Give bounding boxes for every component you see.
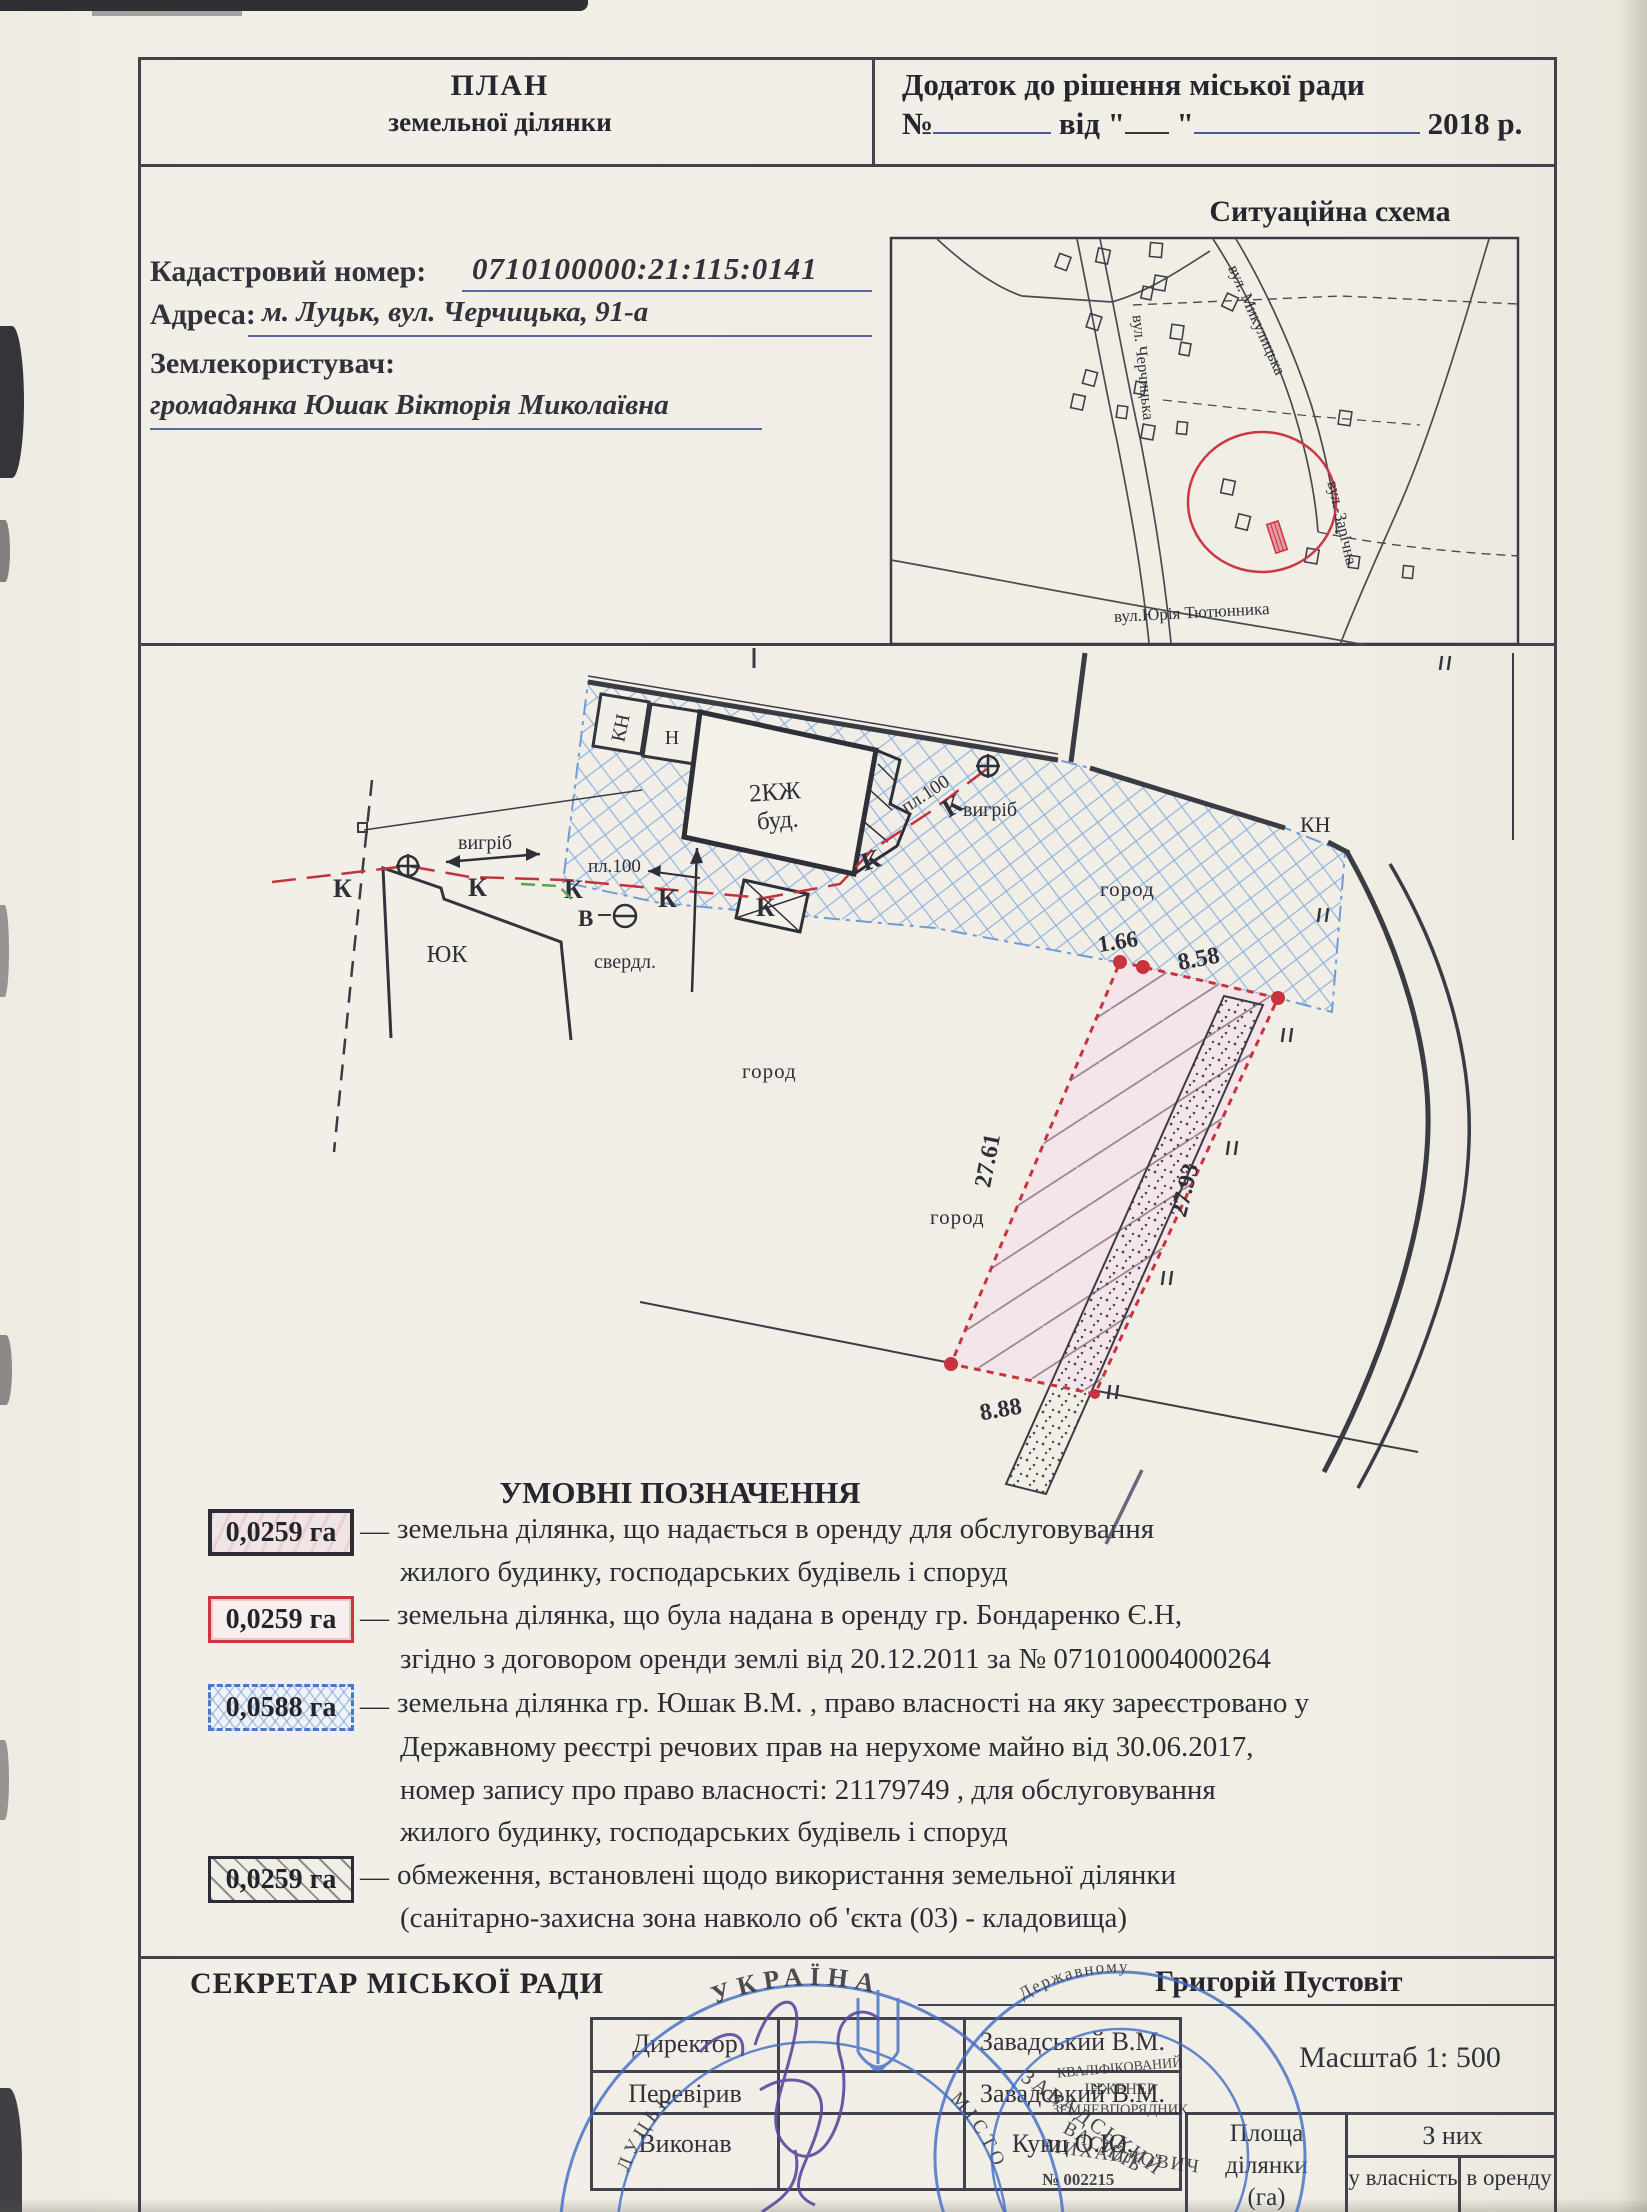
scan-artifact — [92, 11, 242, 16]
sign-name: Завадський В.М. — [966, 2028, 1179, 2056]
k-mark: К — [658, 884, 677, 913]
appendix-day-blank — [1125, 106, 1169, 134]
sign-table-border — [1179, 2017, 1182, 2191]
k-mark: К — [468, 873, 487, 902]
legend-line: жилого будинку, господарських будівель і… — [400, 1557, 1008, 1588]
area-lease-label: в оренду — [1461, 2166, 1557, 2191]
scan-artifact — [0, 1335, 12, 1405]
situ-roads — [891, 239, 1519, 645]
legend-line: земельна ділянка, що була надана в оренд… — [397, 1600, 1182, 1631]
landuser-value: громадянка Юшак Вікторія Миколаївна — [150, 390, 669, 421]
leased-parcel: 1.66 8.58 27.61 27.93 8.88 — [944, 926, 1285, 1494]
situ-highlight — [1188, 432, 1336, 572]
appendix-line2: № від " " 2018 р. — [902, 106, 1522, 140]
dwelling-label-1: 2КЖ — [748, 777, 802, 808]
legend-line: згідно з договором оренди землі від 20.1… — [400, 1644, 1271, 1675]
scan-artifact — [0, 2088, 22, 2212]
situational-map: вул. Черчицька вул. Микулицька вул.-Зарі… — [888, 235, 1522, 647]
scan-artifact — [0, 905, 9, 997]
yuk-label: ЮК — [427, 942, 469, 968]
gorod-label: город — [742, 1059, 797, 1083]
legend-line: земельна ділянка, що надається в оренду … — [397, 1514, 1154, 1545]
sign-table-border — [590, 2070, 1182, 2073]
dim-8-88: 8.88 — [978, 1394, 1024, 1427]
gorod-label: город — [1100, 877, 1155, 901]
legend-swatch-lease-old: 0,0259 га — [208, 1596, 354, 1643]
cadastral-underline — [462, 290, 872, 292]
legend-title: УМОВНІ ПОЗНАЧЕННЯ — [470, 1476, 890, 1509]
secretary-sign-line — [918, 2004, 1554, 2006]
cadastral-value: 0710100000:21:115:0141 — [472, 252, 818, 285]
sign-name: Завадський В.М. — [966, 2080, 1179, 2108]
k-mark: К — [564, 875, 583, 904]
pl100-label: пл.100 — [588, 856, 641, 877]
plan-title-line2: земельної ділянки — [310, 108, 690, 137]
legend-line: номер запису про право власності: 211797… — [400, 1775, 1216, 1806]
area-table-border — [1185, 2112, 1557, 2115]
legend-dash: — — [360, 1516, 389, 1547]
appendix-quote: " — [1177, 106, 1194, 141]
appendix-no: № — [902, 106, 933, 141]
sign-table-border — [590, 2017, 1182, 2020]
area-table-border — [1345, 2155, 1557, 2158]
street-label-zarichna: вул.-Зарічна — [1323, 479, 1361, 567]
vyhrib-label: вигріб — [458, 832, 512, 854]
v-mark: В — [578, 906, 593, 931]
sign-table-border — [777, 2017, 780, 2191]
landuser-underline — [150, 428, 762, 430]
appendix-line1: Додаток до рішення міської ради — [902, 68, 1365, 101]
address-underline — [248, 335, 872, 337]
area-own-label: у власність — [1348, 2166, 1458, 2191]
legend-line: земельна ділянка гр. Юшак В.М. , право в… — [397, 1688, 1309, 1719]
header-divider-vertical — [872, 57, 875, 167]
legend-dash: — — [360, 1603, 389, 1634]
k-mark: К — [756, 893, 775, 922]
scan-artifact — [0, 326, 24, 478]
scan-artifact — [0, 1740, 9, 1820]
footer-divider — [138, 1956, 1557, 1959]
gorod-label: город — [930, 1205, 985, 1229]
landuser-label: Землекористувач: — [150, 348, 395, 380]
sign-name: Кунц О.Ю. — [966, 2130, 1179, 2158]
appendix-year: 2018 р. — [1428, 106, 1523, 141]
area-col1-line2: ділянки — [1188, 2152, 1345, 2179]
area-col1-line1: Площа — [1188, 2120, 1345, 2147]
scale-label: Масштаб 1: 500 — [1240, 2042, 1560, 2074]
address-value: м. Луцьк, вул. Черчицька, 91-а — [262, 297, 648, 328]
situational-title: Ситуаційна схема — [1140, 196, 1520, 228]
situ-buildings — [1055, 243, 1414, 579]
dim-27-61: 27.61 — [970, 1132, 1006, 1190]
dwelling-label-2: буд. — [756, 806, 799, 836]
kn-right-label: КН — [1300, 812, 1331, 837]
secretary-label: СЕКРЕТАР МІСЬКОЇ РАДИ — [190, 1968, 604, 2000]
legend-swatch-restriction: 0,0259 га — [208, 1856, 354, 1903]
scan-artifact — [0, 520, 10, 582]
appendix-date-blank — [1194, 106, 1420, 134]
legend-dash: — — [360, 1691, 389, 1722]
header-divider-horizontal — [138, 164, 1557, 167]
cadastral-label: Кадастровий номер: — [150, 256, 426, 288]
n-box-label: Н — [665, 727, 679, 749]
sign-table-border — [590, 2112, 1182, 2115]
street-label-tiutiunnyka: вул.Юрія Тютюнника — [1113, 599, 1270, 626]
scan-shadow-right — [1618, 0, 1647, 2212]
secretary-name: Григорій Пустовіт — [1155, 1966, 1402, 1998]
legend-dash: — — [360, 1862, 389, 1893]
address-label: Адреса: — [150, 299, 256, 331]
sign-role: Виконав — [593, 2130, 777, 2158]
legend-swatch-owned: 0,0588 га — [208, 1684, 354, 1731]
area-ofthem-label: З них — [1348, 2122, 1557, 2150]
legend-swatch-lease-new: 0,0259 га — [208, 1509, 354, 1556]
legend-line: (санітарно-захисна зона навколо об 'єкта… — [400, 1903, 1127, 1934]
legend-line: обмеження, встановлені щодо використання… — [397, 1860, 1176, 1891]
legend-line: жилого будинку, господарських будівель і… — [400, 1817, 1008, 1848]
sign-table-border — [590, 2188, 1182, 2191]
appendix-no-blank — [933, 106, 1051, 134]
sign-role: Директор — [593, 2030, 777, 2058]
k-mark: К — [333, 874, 352, 903]
street-label-mykulytska: вул. Микулицька — [1224, 262, 1290, 379]
sign-role: Перевірив — [593, 2080, 777, 2108]
plan-title-line1: ПЛАН — [310, 70, 690, 102]
scanned-land-plan-page: ПЛАН земельної ділянки Додаток до рішенн… — [0, 0, 1647, 2212]
area-col1-line3: (га) — [1188, 2184, 1345, 2211]
legend-line: Державному реєстрі речових прав на нерух… — [400, 1732, 1254, 1763]
sverdl-label: свердл. — [594, 951, 656, 973]
vyhrib-label: вигріб — [963, 799, 1017, 821]
appendix-vid: від " — [1059, 106, 1125, 141]
scan-artifact — [0, 0, 588, 11]
